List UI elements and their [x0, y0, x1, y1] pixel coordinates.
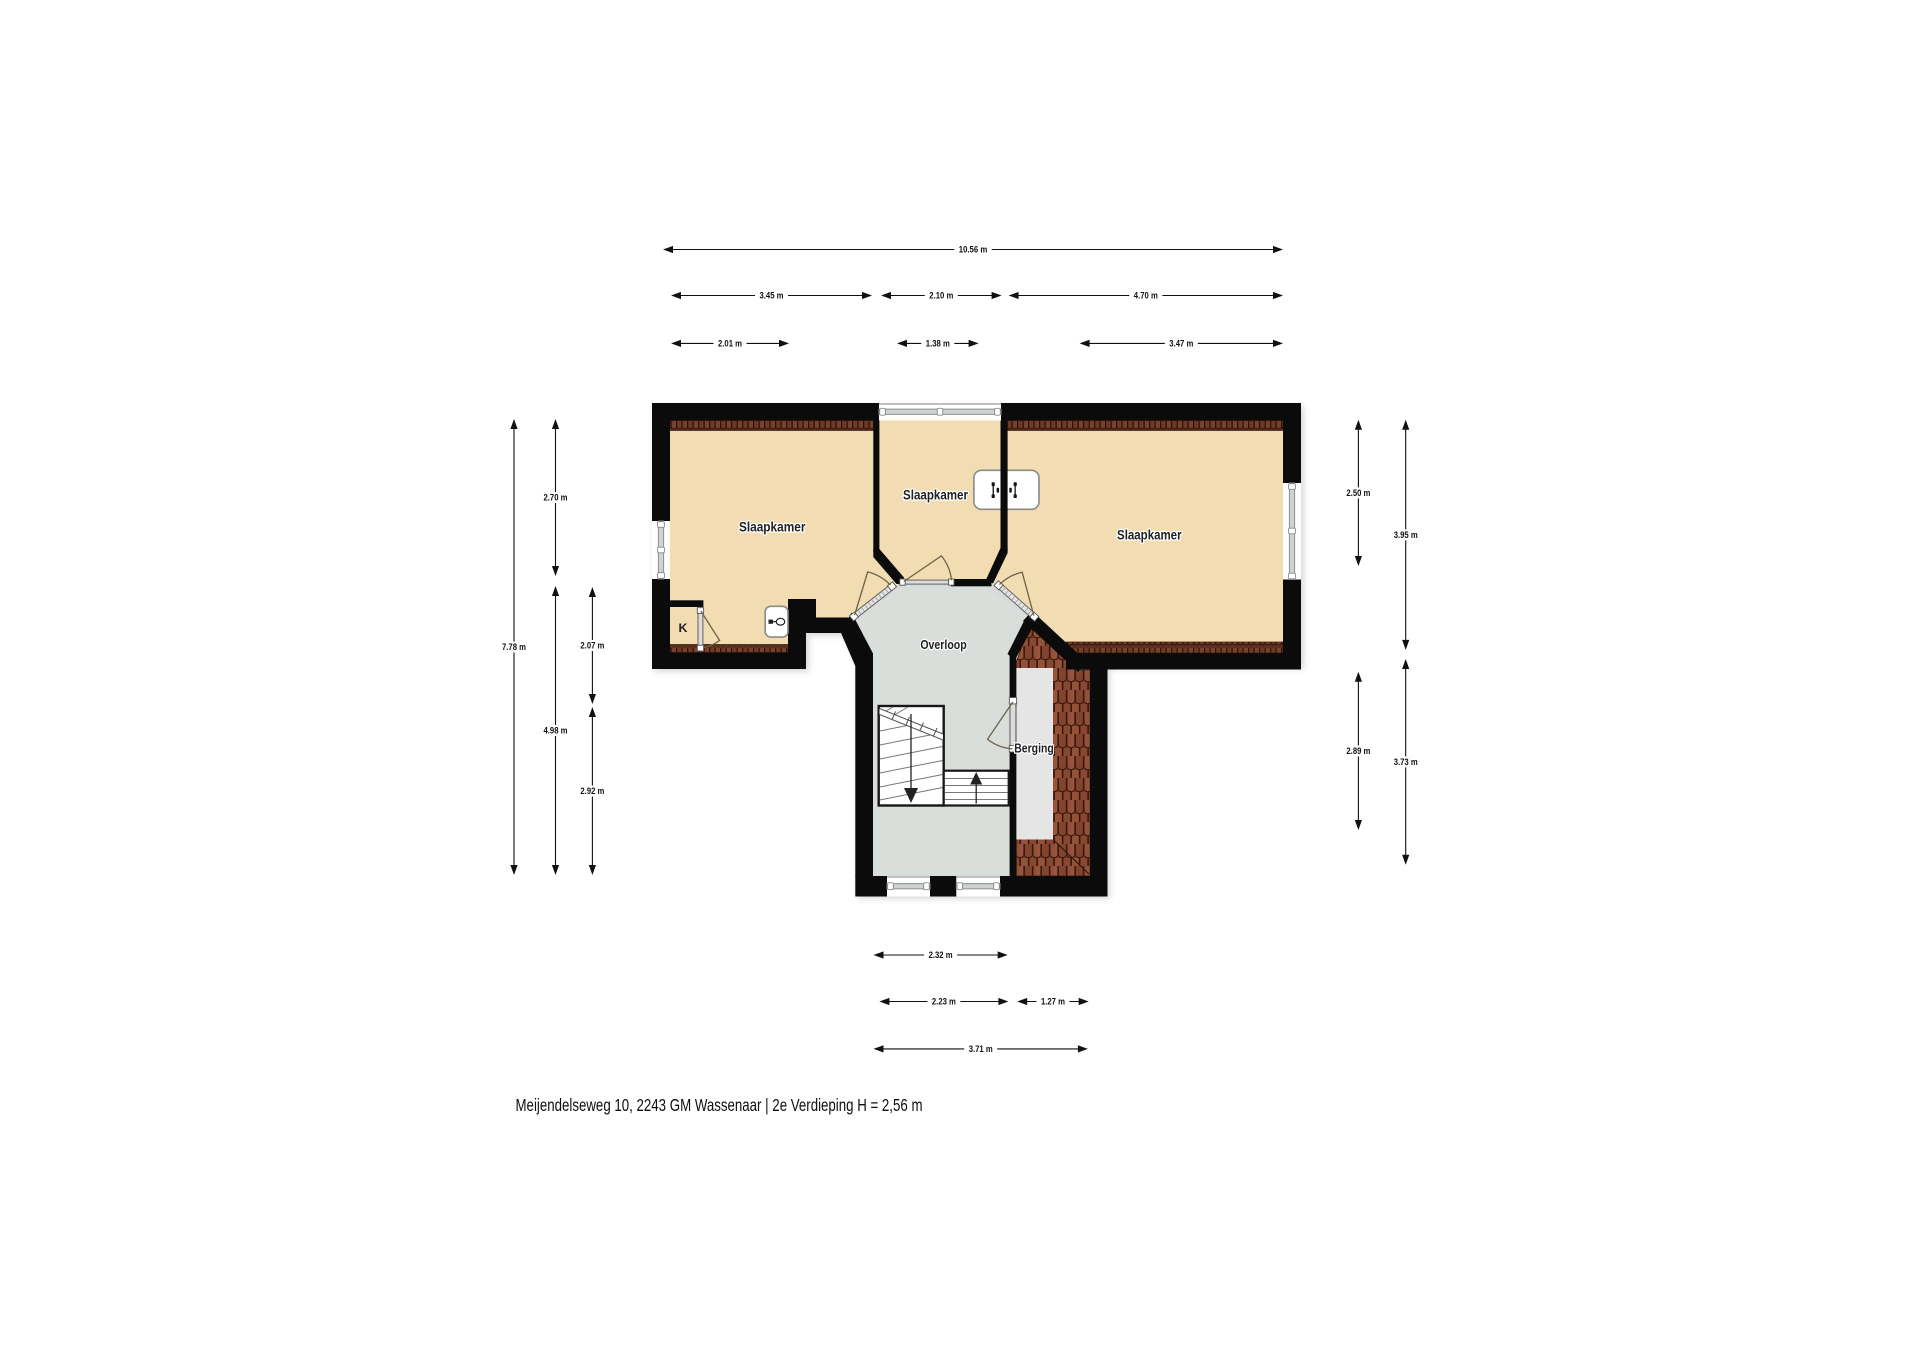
svg-text:10.56 m: 10.56 m [959, 245, 988, 255]
svg-text:2.92 m: 2.92 m [580, 786, 604, 796]
svg-text:2.10 m: 2.10 m [929, 291, 953, 301]
svg-text:Meijendelseweg 10, 2243 GM Was: Meijendelseweg 10, 2243 GM Wassenaar | 2… [516, 1095, 923, 1115]
svg-text:3.47 m: 3.47 m [1169, 339, 1193, 349]
svg-text:2.50 m: 2.50 m [1346, 488, 1370, 498]
svg-text:Berging: Berging [1014, 740, 1054, 755]
svg-text:3.95 m: 3.95 m [1394, 530, 1418, 540]
svg-text:Slaapkamer: Slaapkamer [739, 520, 806, 535]
svg-text:Overloop: Overloop [920, 637, 966, 652]
svg-text:3.73 m: 3.73 m [1394, 757, 1418, 767]
svg-text:Slaapkamer: Slaapkamer [903, 488, 969, 503]
svg-text:1.38 m: 1.38 m [926, 339, 950, 349]
svg-text:2.23 m: 2.23 m [932, 997, 956, 1007]
svg-text:2.70 m: 2.70 m [544, 493, 568, 503]
svg-text:2.07 m: 2.07 m [580, 641, 604, 651]
svg-text:Slaapkamer: Slaapkamer [1117, 528, 1182, 543]
svg-text:4.98 m: 4.98 m [544, 726, 568, 736]
svg-text:1.27 m: 1.27 m [1041, 997, 1065, 1007]
svg-text:K: K [679, 621, 688, 635]
svg-text:4.70 m: 4.70 m [1134, 291, 1158, 301]
svg-text:2.89 m: 2.89 m [1346, 746, 1370, 756]
svg-text:3.45 m: 3.45 m [760, 291, 784, 301]
svg-text:3.71 m: 3.71 m [969, 1044, 993, 1054]
svg-text:2.32 m: 2.32 m [929, 950, 953, 960]
svg-text:2.01 m: 2.01 m [718, 339, 742, 349]
svg-text:7.78 m: 7.78 m [502, 642, 526, 652]
